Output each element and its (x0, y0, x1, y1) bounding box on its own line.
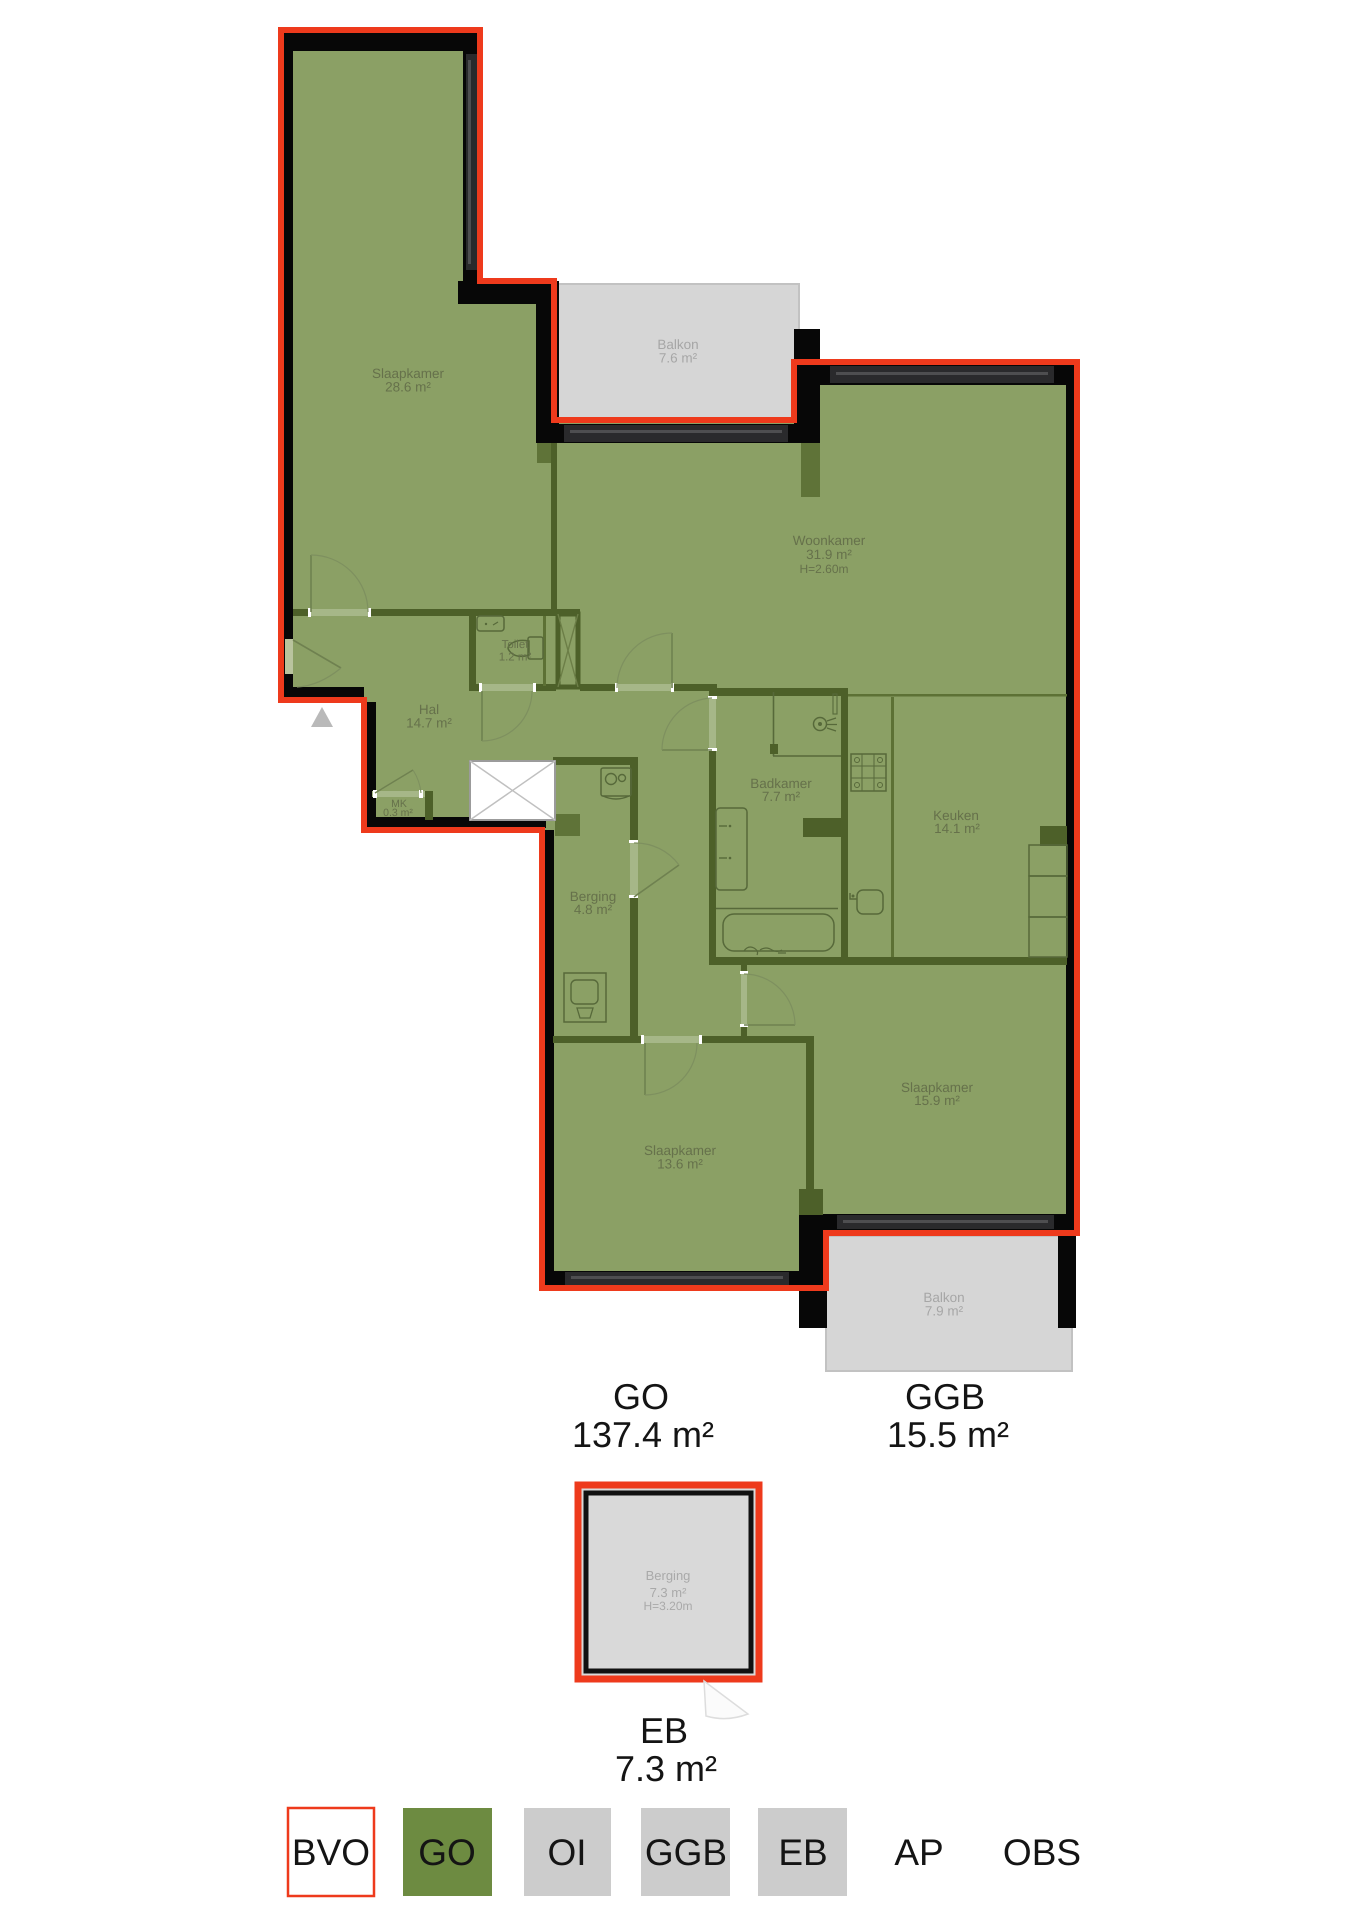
svg-text:GGB: GGB (645, 1832, 727, 1873)
svg-text:13.6 m²: 13.6 m² (657, 1157, 703, 1172)
svg-text:28.6 m²: 28.6 m² (385, 380, 431, 395)
svg-text:4.8 m²: 4.8 m² (574, 902, 613, 917)
svg-text:15.5 m²: 15.5 m² (887, 1414, 1009, 1455)
svg-text:AP: AP (894, 1832, 943, 1873)
svg-text:7.3 m²: 7.3 m² (650, 1585, 688, 1600)
svg-text:H=3.20m: H=3.20m (643, 1599, 692, 1613)
svg-text:14.1 m²: 14.1 m² (934, 821, 980, 836)
svg-text:Toilet: Toilet (502, 639, 530, 651)
svg-text:EB: EB (778, 1832, 827, 1873)
svg-text:GO: GO (418, 1832, 476, 1873)
svg-text:GO: GO (613, 1376, 669, 1417)
svg-text:14.7 m²: 14.7 m² (406, 716, 452, 731)
svg-text:1.2 m²: 1.2 m² (499, 652, 532, 664)
svg-text:15.9 m²: 15.9 m² (914, 1093, 960, 1108)
svg-text:BVO: BVO (292, 1832, 370, 1873)
svg-text:0.3 m²: 0.3 m² (383, 807, 413, 819)
svg-text:Woonkamer: Woonkamer (793, 533, 866, 548)
svg-text:7.7 m²: 7.7 m² (762, 789, 801, 804)
svg-text:H=2.60m: H=2.60m (799, 562, 848, 576)
svg-text:GGB: GGB (905, 1376, 985, 1417)
svg-text:7.3 m²: 7.3 m² (615, 1748, 717, 1789)
svg-text:OBS: OBS (1003, 1832, 1081, 1873)
svg-text:7.9 m²: 7.9 m² (925, 1304, 964, 1319)
svg-text:OI: OI (547, 1832, 586, 1873)
svg-text:7.6 m²: 7.6 m² (659, 351, 698, 366)
svg-text:Berging: Berging (646, 1568, 691, 1583)
svg-text:31.9 m²: 31.9 m² (806, 547, 852, 562)
svg-text:EB: EB (640, 1710, 688, 1751)
svg-text:137.4 m²: 137.4 m² (572, 1414, 714, 1455)
